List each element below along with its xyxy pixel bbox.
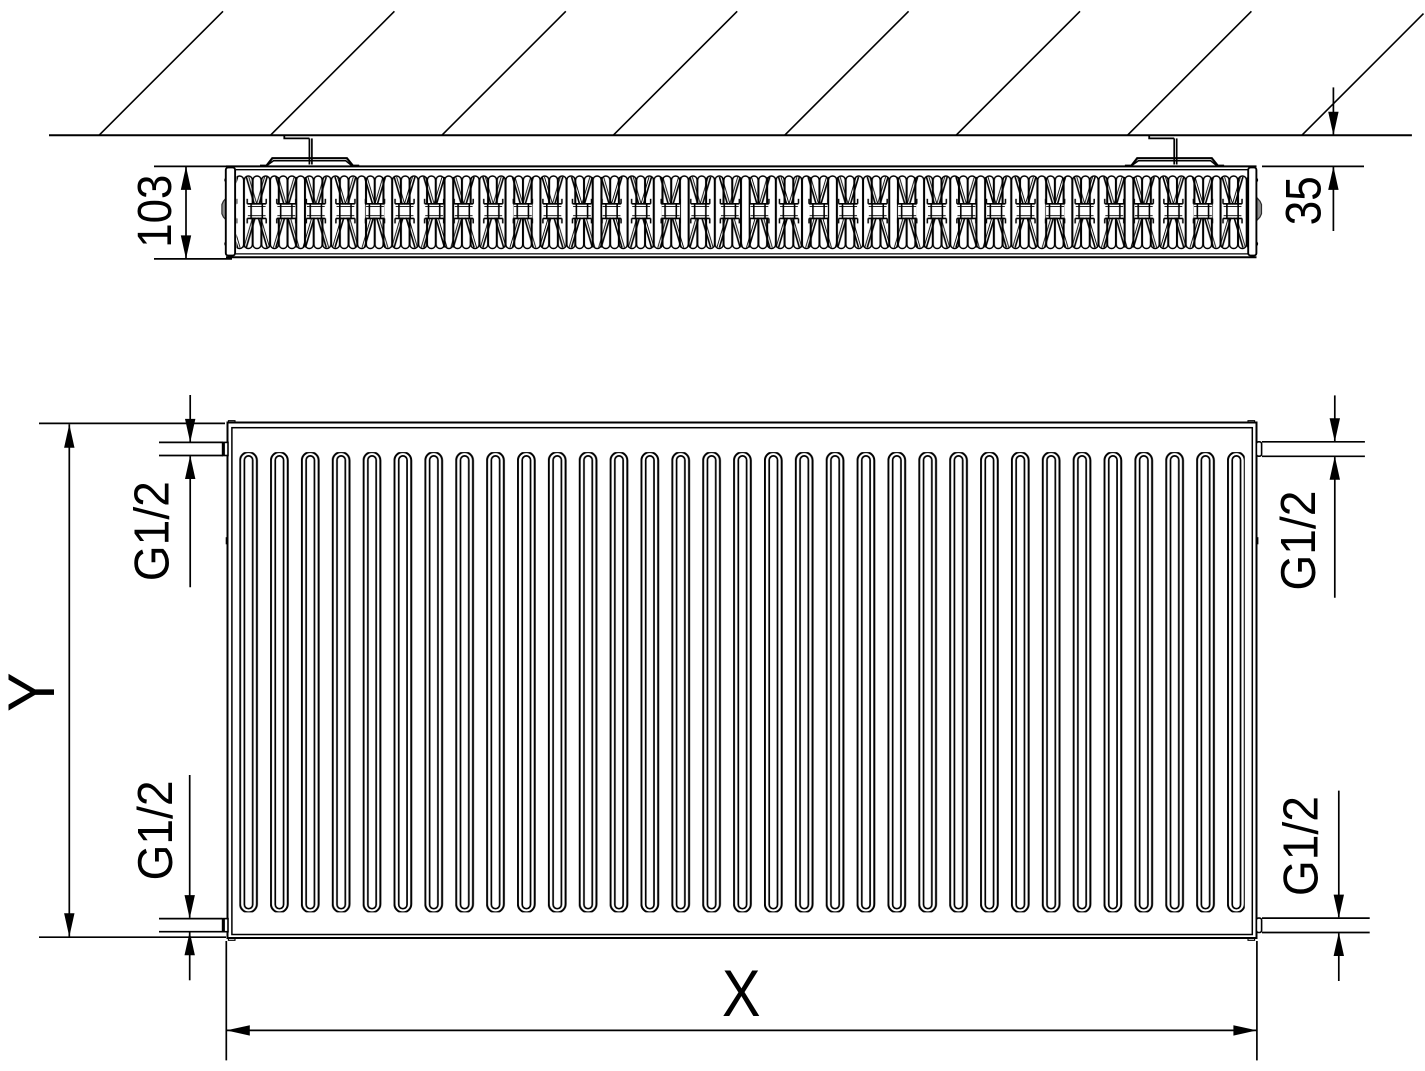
- svg-text:103: 103: [129, 175, 182, 248]
- svg-text:Y: Y: [0, 672, 68, 712]
- svg-text:G1/2: G1/2: [129, 781, 183, 881]
- svg-text:35: 35: [1275, 176, 1331, 225]
- svg-text:X: X: [722, 956, 761, 1030]
- svg-text:G1/2: G1/2: [1274, 796, 1328, 896]
- svg-text:G1/2: G1/2: [1272, 491, 1326, 591]
- svg-text:G1/2: G1/2: [126, 481, 180, 581]
